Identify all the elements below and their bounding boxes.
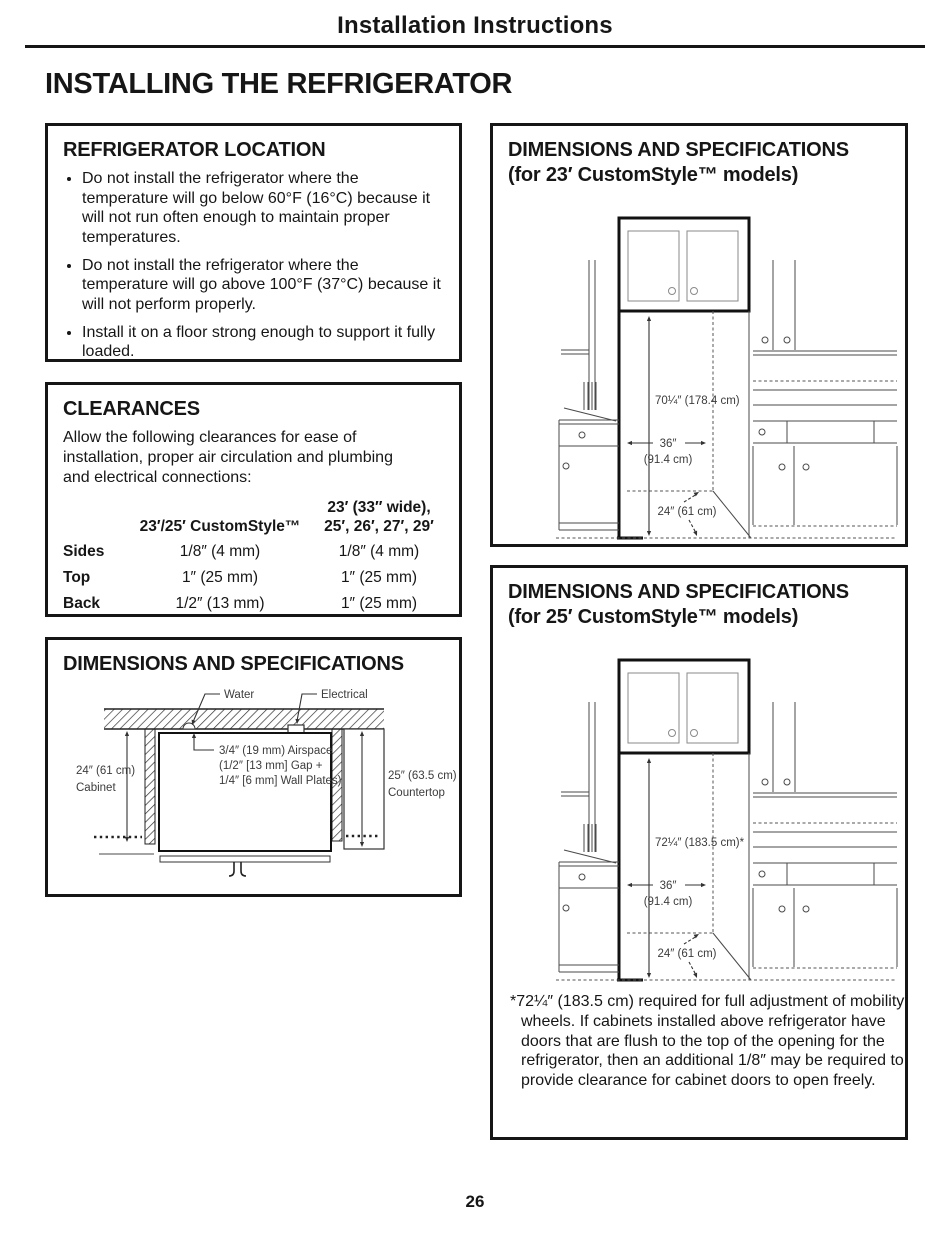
depth-dimension-label: 24″ (61 cm) bbox=[657, 506, 716, 518]
upper-cabinet bbox=[619, 218, 749, 311]
page-title: INSTALLING THE REFRIGERATOR bbox=[45, 68, 512, 101]
airspace-label: 3/4″ (19 mm) Airspace bbox=[219, 745, 332, 757]
width-dimension-label: 36″ bbox=[660, 438, 677, 450]
height-dimension-label: 72¼″ (183.5 cm)* bbox=[655, 837, 745, 849]
table-row: Back 1/2″ (13 mm) 1″ (25 mm) bbox=[63, 595, 449, 613]
cabinet-depth-label: Cabinet bbox=[76, 782, 116, 794]
cabinet-depth-label: 24″ (61 cm) bbox=[76, 765, 135, 777]
col2-header: 23′/25′ CustomStyle™ bbox=[135, 517, 305, 536]
door-knob bbox=[563, 905, 569, 911]
countertop-depth-label: 25″ (63.5 cm) bbox=[388, 770, 456, 782]
dimensions-23-box: DIMENSIONS AND SPECIFICATIONS (for 23′ C… bbox=[490, 123, 908, 547]
table-row: Sides 1/8″ (4 mm) 1/8″ (4 mm) bbox=[63, 543, 449, 561]
door-knob bbox=[803, 906, 809, 912]
clearances-title: CLEARANCES bbox=[63, 397, 445, 422]
drawer-knob bbox=[759, 871, 765, 877]
dimensions-25-title-line2: (for 25′ CustomStyle™ models) bbox=[508, 605, 891, 630]
document-header-title: Installation Instructions bbox=[0, 12, 950, 40]
col3-header-line1: 23′ (33″ wide), bbox=[305, 498, 453, 517]
drawer-knob bbox=[759, 429, 765, 435]
height-dimension-label: 70¼″ (178.4 cm) bbox=[655, 395, 740, 407]
door-knob bbox=[803, 464, 809, 470]
drawer-knob bbox=[579, 432, 585, 438]
row-value-wide: 1″ (25 mm) bbox=[305, 595, 453, 613]
electrical-stub bbox=[288, 725, 304, 733]
height-footnote: *72¼″ (183.5 cm) required for full adjus… bbox=[510, 992, 905, 1091]
row-label: Back bbox=[63, 595, 135, 613]
left-cabinet-side bbox=[145, 729, 155, 844]
countertop-outline bbox=[344, 729, 384, 849]
location-bullet-2: Do not install the refrigerator where th… bbox=[82, 256, 449, 315]
width-dimension-label: (91.4 cm) bbox=[644, 454, 693, 466]
countertop-depth-label: Countertop bbox=[388, 787, 445, 799]
width-dimension-label: 36″ bbox=[660, 880, 677, 892]
water-label: Water bbox=[224, 689, 254, 701]
door-knob bbox=[784, 779, 790, 785]
door-knob bbox=[779, 906, 785, 912]
door-knob bbox=[779, 464, 785, 470]
depth-dimension-label: 24″ (61 cm) bbox=[657, 948, 716, 960]
door-knob bbox=[563, 463, 569, 469]
table-row: Top 1″ (25 mm) 1″ (25 mm) bbox=[63, 569, 449, 587]
col3-header-line2: 25′, 26′, 27′, 29′ bbox=[305, 517, 453, 536]
electrical-label: Electrical bbox=[321, 689, 368, 701]
dimensions-23-title-line1: DIMENSIONS AND SPECIFICATIONS bbox=[508, 138, 891, 163]
row-value-wide: 1″ (25 mm) bbox=[305, 569, 453, 587]
clearances-table-header: 23′/25′ CustomStyle™ 23′ (33″ wide), 25′… bbox=[63, 498, 449, 537]
top-view-clearance-diagram: WaterElectrical3/4″ (19 mm) Airspace(1/2… bbox=[54, 684, 456, 892]
water-line-hook bbox=[241, 862, 246, 876]
clearances-table: 23′/25′ CustomStyle™ 23′ (33″ wide), 25′… bbox=[63, 498, 449, 613]
dimensions-23-title: DIMENSIONS AND SPECIFICATIONS (for 23′ C… bbox=[508, 138, 891, 188]
refrigerator-location-title: REFRIGERATOR LOCATION bbox=[63, 138, 445, 163]
drawer-knob bbox=[579, 874, 585, 880]
wall-hatch bbox=[104, 709, 384, 729]
col3-header: 23′ (33″ wide), 25′, 26′, 27′, 29′ bbox=[305, 498, 453, 537]
dimensions-23-title-line2: (for 23′ CustomStyle™ models) bbox=[508, 163, 891, 188]
page-number: 26 bbox=[0, 1192, 950, 1212]
dimensions-specifications-box: DIMENSIONS AND SPECIFICATIONS WaterElect… bbox=[45, 637, 462, 897]
row-value-customstyle: 1/2″ (13 mm) bbox=[135, 595, 305, 613]
header-rule bbox=[25, 45, 925, 48]
location-bullet-3: Install it on a floor strong enough to s… bbox=[82, 323, 449, 362]
dimensions-25-title: DIMENSIONS AND SPECIFICATIONS (for 25′ C… bbox=[508, 580, 891, 630]
width-dimension-label: (91.4 cm) bbox=[644, 896, 693, 908]
row-value-wide: 1/8″ (4 mm) bbox=[305, 543, 453, 561]
water-line-hook bbox=[229, 862, 234, 876]
document-page: Installation Instructions INSTALLING THE… bbox=[0, 0, 950, 1241]
upper-cabinet bbox=[619, 660, 749, 753]
base-grille bbox=[160, 856, 330, 862]
row-value-customstyle: 1″ (25 mm) bbox=[135, 569, 305, 587]
dimensions-25-title-line1: DIMENSIONS AND SPECIFICATIONS bbox=[508, 580, 891, 605]
door-knob bbox=[762, 337, 768, 343]
row-label: Top bbox=[63, 569, 135, 587]
airspace-label: 1/4″ [6 mm] Wall Plates) bbox=[219, 775, 342, 787]
alcove-diagram-25: 72¼″ (183.5 cm)*36″(91.4 cm)24″ (61 cm) bbox=[501, 638, 901, 985]
row-value-customstyle: 1/8″ (4 mm) bbox=[135, 543, 305, 561]
dimensions-title: DIMENSIONS AND SPECIFICATIONS bbox=[63, 652, 445, 677]
clearances-box: CLEARANCES Allow the following clearance… bbox=[45, 382, 462, 617]
row-label: Sides bbox=[63, 543, 135, 561]
location-bullet-1: Do not install the refrigerator where th… bbox=[82, 169, 449, 248]
alcove-diagram-23: 70¼″ (178.4 cm)36″(91.4 cm)24″ (61 cm) bbox=[501, 196, 901, 543]
clearances-intro: Allow the following clearances for ease … bbox=[63, 428, 415, 488]
door-knob bbox=[762, 779, 768, 785]
door-knob bbox=[784, 337, 790, 343]
location-bullet-list: Do not install the refrigerator where th… bbox=[48, 169, 459, 362]
dimensions-25-box: DIMENSIONS AND SPECIFICATIONS (for 25′ C… bbox=[490, 565, 908, 1140]
airspace-label: (1/2″ [13 mm] Gap + bbox=[219, 760, 323, 772]
refrigerator-location-box: REFRIGERATOR LOCATION Do not install the… bbox=[45, 123, 462, 362]
